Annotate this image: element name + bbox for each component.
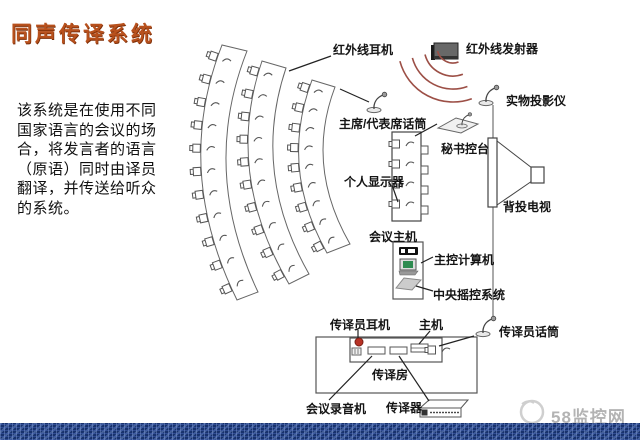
label-interpreter-mic: 传译员话筒 [499,323,559,340]
interpreter-mic-icon [476,316,496,336]
page-title: 同声传译系统 [11,18,155,48]
diagram-canvas [0,0,640,443]
intro-paragraph: 该系统是在使用不同 国家语言的会议的场 合，将发言者的语言 （原语）同时由译员 … [17,102,167,220]
secretary-console-icon [438,113,478,133]
intro-line: （原语）同时由译员 [17,161,167,181]
intro-line: 国家语言的会议的场 [17,122,167,142]
chairman-mic-icon [367,92,387,112]
booth-icon [316,337,477,393]
label-main-computer: 主控计算机 [434,251,494,268]
label-document-camera: 实物投影仪 [506,92,566,109]
label-infrared-headphone: 红外线耳机 [333,41,393,58]
conference-host-icon [393,242,423,299]
infrared-transmitter-icon [431,43,458,60]
booth-device-icon [368,347,385,354]
audience-arc-rows [201,45,350,300]
intro-line: 合，将发言者的语言 [17,141,167,161]
label-central-control: 中央摇控系统 [433,286,505,303]
label-conference-recorder: 会议录音机 [306,400,366,417]
label-rear-projection-tv: 背投电视 [503,198,551,215]
document-camera-icon [479,85,499,105]
rack-device-icon [420,400,468,417]
label-personal-display: 个人显示器 [344,173,404,190]
label-conference-host: 会议主机 [369,228,417,245]
slide: 同声传译系统 该系统是在使用不同 国家语言的会议的场 合，将发言者的语言 （原语… [0,0,640,443]
intro-line: 该系统是在使用不同 [17,102,167,122]
label-infrared-transmitter: 红外线发射器 [466,40,538,57]
label-chairman-mic: 主席/代表席话筒 [339,115,426,132]
speaker-icon [352,348,361,355]
label-secretary-console: 秘书控台 [441,140,489,157]
swirl-logo-icon [521,401,543,423]
label-interpreter-unit: 传译器 [386,399,422,416]
intro-line: 翻译，并传送给听众 [17,180,167,200]
label-booth: 传译房 [372,366,408,383]
red-dot-icon [355,338,363,346]
computer-icon [399,259,418,275]
intro-line: 的系统。 [17,200,167,220]
bottom-decorative-bar [0,423,640,440]
label-booth-host: 主机 [419,316,443,333]
label-interpreter-headphone: 传译员耳机 [330,316,390,333]
booth-device-icon [390,347,407,354]
rear-tv-icon [488,138,544,207]
